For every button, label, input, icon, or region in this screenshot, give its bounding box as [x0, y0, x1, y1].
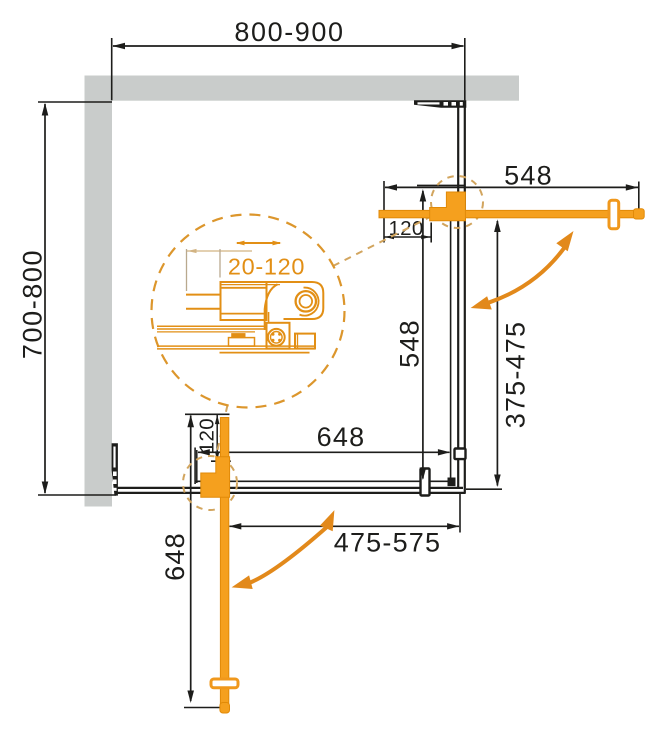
svg-text:120: 120 — [196, 418, 219, 453]
svg-text:548: 548 — [395, 319, 425, 368]
svg-text:648: 648 — [160, 532, 190, 581]
svg-text:800-900: 800-900 — [234, 17, 344, 47]
svg-text:20-120: 20-120 — [228, 254, 305, 280]
svg-text:648: 648 — [317, 422, 366, 452]
svg-text:375-475: 375-475 — [501, 321, 531, 429]
svg-text:475-575: 475-575 — [334, 528, 442, 558]
svg-text:548: 548 — [504, 161, 553, 191]
svg-text:700-800: 700-800 — [18, 249, 48, 359]
